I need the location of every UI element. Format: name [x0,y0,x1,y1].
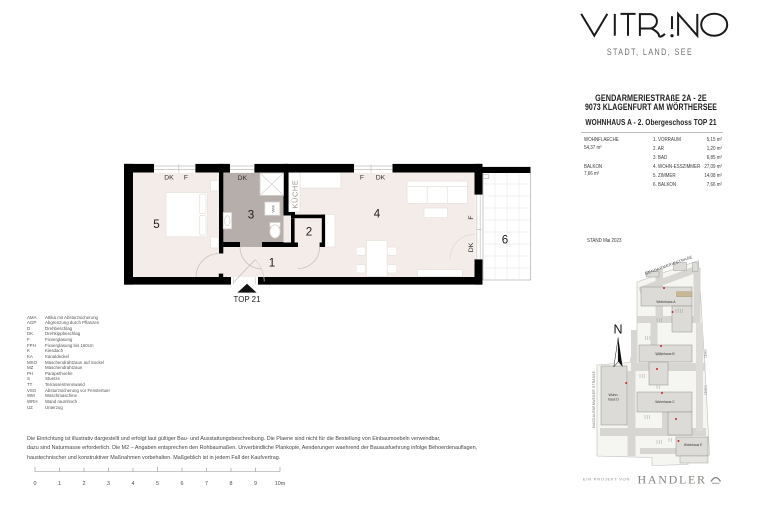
svg-text:MAGDALENENWEGER STRASSE: MAGDALENENWEGER STRASSE [592,371,596,428]
svg-text:EIN PROJEKT VON: EIN PROJEKT VON [583,477,630,482]
svg-text:Wohnhaus A: Wohnhaus A [656,300,676,304]
svg-text:ZENO II: ZENO II [704,385,708,395]
svg-text:Wohnhaus C: Wohnhaus C [655,400,675,404]
svg-text:Wohnhaus B: Wohnhaus B [655,352,675,356]
svg-text:N: N [613,323,622,337]
svg-text:haus D: haus D [608,398,619,402]
svg-text:Wohn-: Wohn- [609,393,619,397]
svg-text:ZENO I: ZENO I [704,348,708,358]
svg-text:Wohnhaus E: Wohnhaus E [684,443,702,447]
svg-text:HANDLER: HANDLER [638,473,707,487]
